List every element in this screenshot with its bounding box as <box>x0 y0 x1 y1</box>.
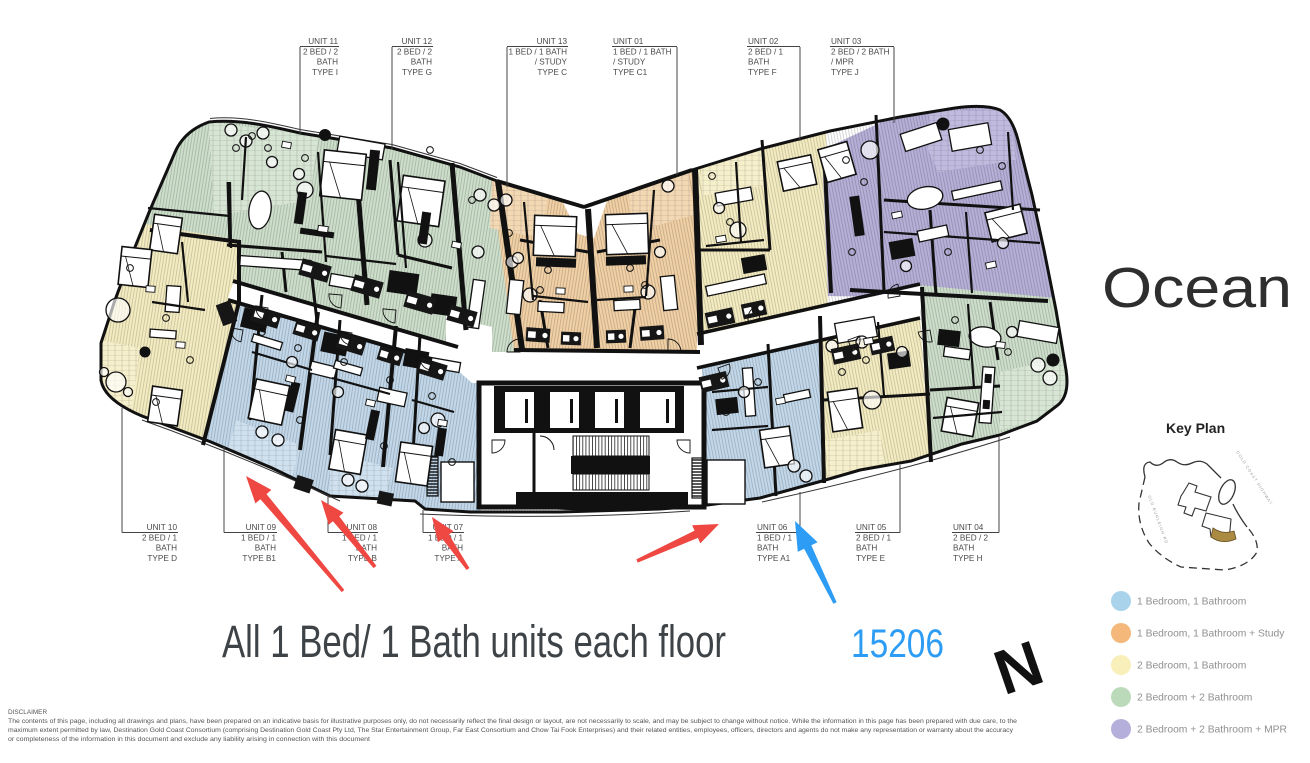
svg-text:1 Bedroom, 1 Bathroom + Study: 1 Bedroom, 1 Bathroom + Study <box>1137 629 1285 640</box>
svg-text:1 BED / 1: 1 BED / 1 <box>241 534 276 543</box>
svg-text:TYPE F: TYPE F <box>748 68 777 77</box>
svg-text:BATH: BATH <box>757 544 778 553</box>
svg-text:2 Bedroom + 2 Bathroom + MPR: 2 Bedroom + 2 Bathroom + MPR <box>1137 725 1287 736</box>
svg-text:UNIT 12: UNIT 12 <box>402 37 433 46</box>
svg-text:TYPE J: TYPE J <box>831 68 859 77</box>
svg-text:/ STUDY: / STUDY <box>613 58 646 67</box>
svg-text:2 BED / 2: 2 BED / 2 <box>953 534 988 543</box>
svg-text:TYPE D: TYPE D <box>147 554 177 563</box>
svg-text:N: N <box>986 628 1052 709</box>
svg-text:BATH: BATH <box>156 544 177 553</box>
svg-text:UNIT 05: UNIT 05 <box>856 523 887 532</box>
svg-text:OLD BURLEIGH RD: OLD BURLEIGH RD <box>1147 495 1169 545</box>
svg-text:TYPE H: TYPE H <box>953 554 983 563</box>
svg-text:BATH: BATH <box>953 544 974 553</box>
svg-text:maximum extent permitted by la: maximum extent permitted by law, Destina… <box>8 727 1014 734</box>
svg-text:2 BED / 2: 2 BED / 2 <box>303 48 338 57</box>
svg-text:2 BED / 1: 2 BED / 1 <box>856 534 891 543</box>
svg-text:UNIT 11: UNIT 11 <box>308 37 338 46</box>
svg-text:UNIT 02: UNIT 02 <box>748 37 779 46</box>
svg-text:Key Plan: Key Plan <box>1166 420 1225 436</box>
svg-text:UNIT 01: UNIT 01 <box>613 37 644 46</box>
svg-text:Ocean: Ocean <box>1102 256 1292 320</box>
svg-text:1 BED / 1: 1 BED / 1 <box>757 534 792 543</box>
svg-text:2 BED / 2 BATH: 2 BED / 2 BATH <box>831 48 890 57</box>
svg-text:BATH: BATH <box>411 58 432 67</box>
svg-text:TYPE C1: TYPE C1 <box>613 68 648 77</box>
svg-text:or completeness of the informa: or completeness of the information in th… <box>8 736 370 743</box>
svg-text:BATH: BATH <box>317 58 338 67</box>
svg-text:UNIT 04: UNIT 04 <box>953 523 984 532</box>
svg-text:UNIT 03: UNIT 03 <box>831 37 862 46</box>
svg-text:UNIT 13: UNIT 13 <box>537 37 568 46</box>
svg-text:1 BED / 1 BATH: 1 BED / 1 BATH <box>508 48 567 57</box>
svg-text:UNIT 08: UNIT 08 <box>347 523 378 532</box>
svg-text:15206: 15206 <box>851 622 944 666</box>
svg-text:2 BED / 2: 2 BED / 2 <box>397 48 432 57</box>
svg-text:GOLD COAST HIGHWAY: GOLD COAST HIGHWAY <box>1235 450 1274 506</box>
svg-text:TYPE C: TYPE C <box>537 68 567 77</box>
svg-text:UNIT 09: UNIT 09 <box>246 523 277 532</box>
svg-text:TYPE A1: TYPE A1 <box>757 554 791 563</box>
svg-text:TYPE B1: TYPE B1 <box>242 554 276 563</box>
svg-text:The contents of this page, inc: The contents of this page, including all… <box>8 718 1017 725</box>
svg-text:/ MPR: / MPR <box>831 58 854 67</box>
svg-text:1 Bedroom, 1 Bathroom: 1 Bedroom, 1 Bathroom <box>1137 597 1246 608</box>
svg-text:2 Bedroom, 1 Bathroom: 2 Bedroom, 1 Bathroom <box>1137 661 1246 672</box>
svg-text:/ STUDY: / STUDY <box>535 58 568 67</box>
svg-text:2 BED / 1: 2 BED / 1 <box>748 48 783 57</box>
svg-text:TYPE E: TYPE E <box>856 554 886 563</box>
svg-text:BATH: BATH <box>748 58 769 67</box>
svg-text:UNIT 10: UNIT 10 <box>147 523 178 532</box>
svg-text:UNIT 06: UNIT 06 <box>757 523 788 532</box>
svg-text:TYPE I: TYPE I <box>312 68 338 77</box>
svg-text:BATH: BATH <box>255 544 276 553</box>
svg-text:All 1 Bed/ 1 Bath units each f: All 1 Bed/ 1 Bath units each floor <box>222 616 726 667</box>
svg-text:1 BED / 1 BATH: 1 BED / 1 BATH <box>613 48 672 57</box>
svg-text:2 Bedroom + 2 Bathroom: 2 Bedroom + 2 Bathroom <box>1137 693 1252 704</box>
svg-text:BATH: BATH <box>856 544 877 553</box>
svg-text:DISCLAIMER: DISCLAIMER <box>8 709 47 716</box>
svg-text:TYPE G: TYPE G <box>402 68 432 77</box>
svg-text:2 BED / 1: 2 BED / 1 <box>142 534 177 543</box>
